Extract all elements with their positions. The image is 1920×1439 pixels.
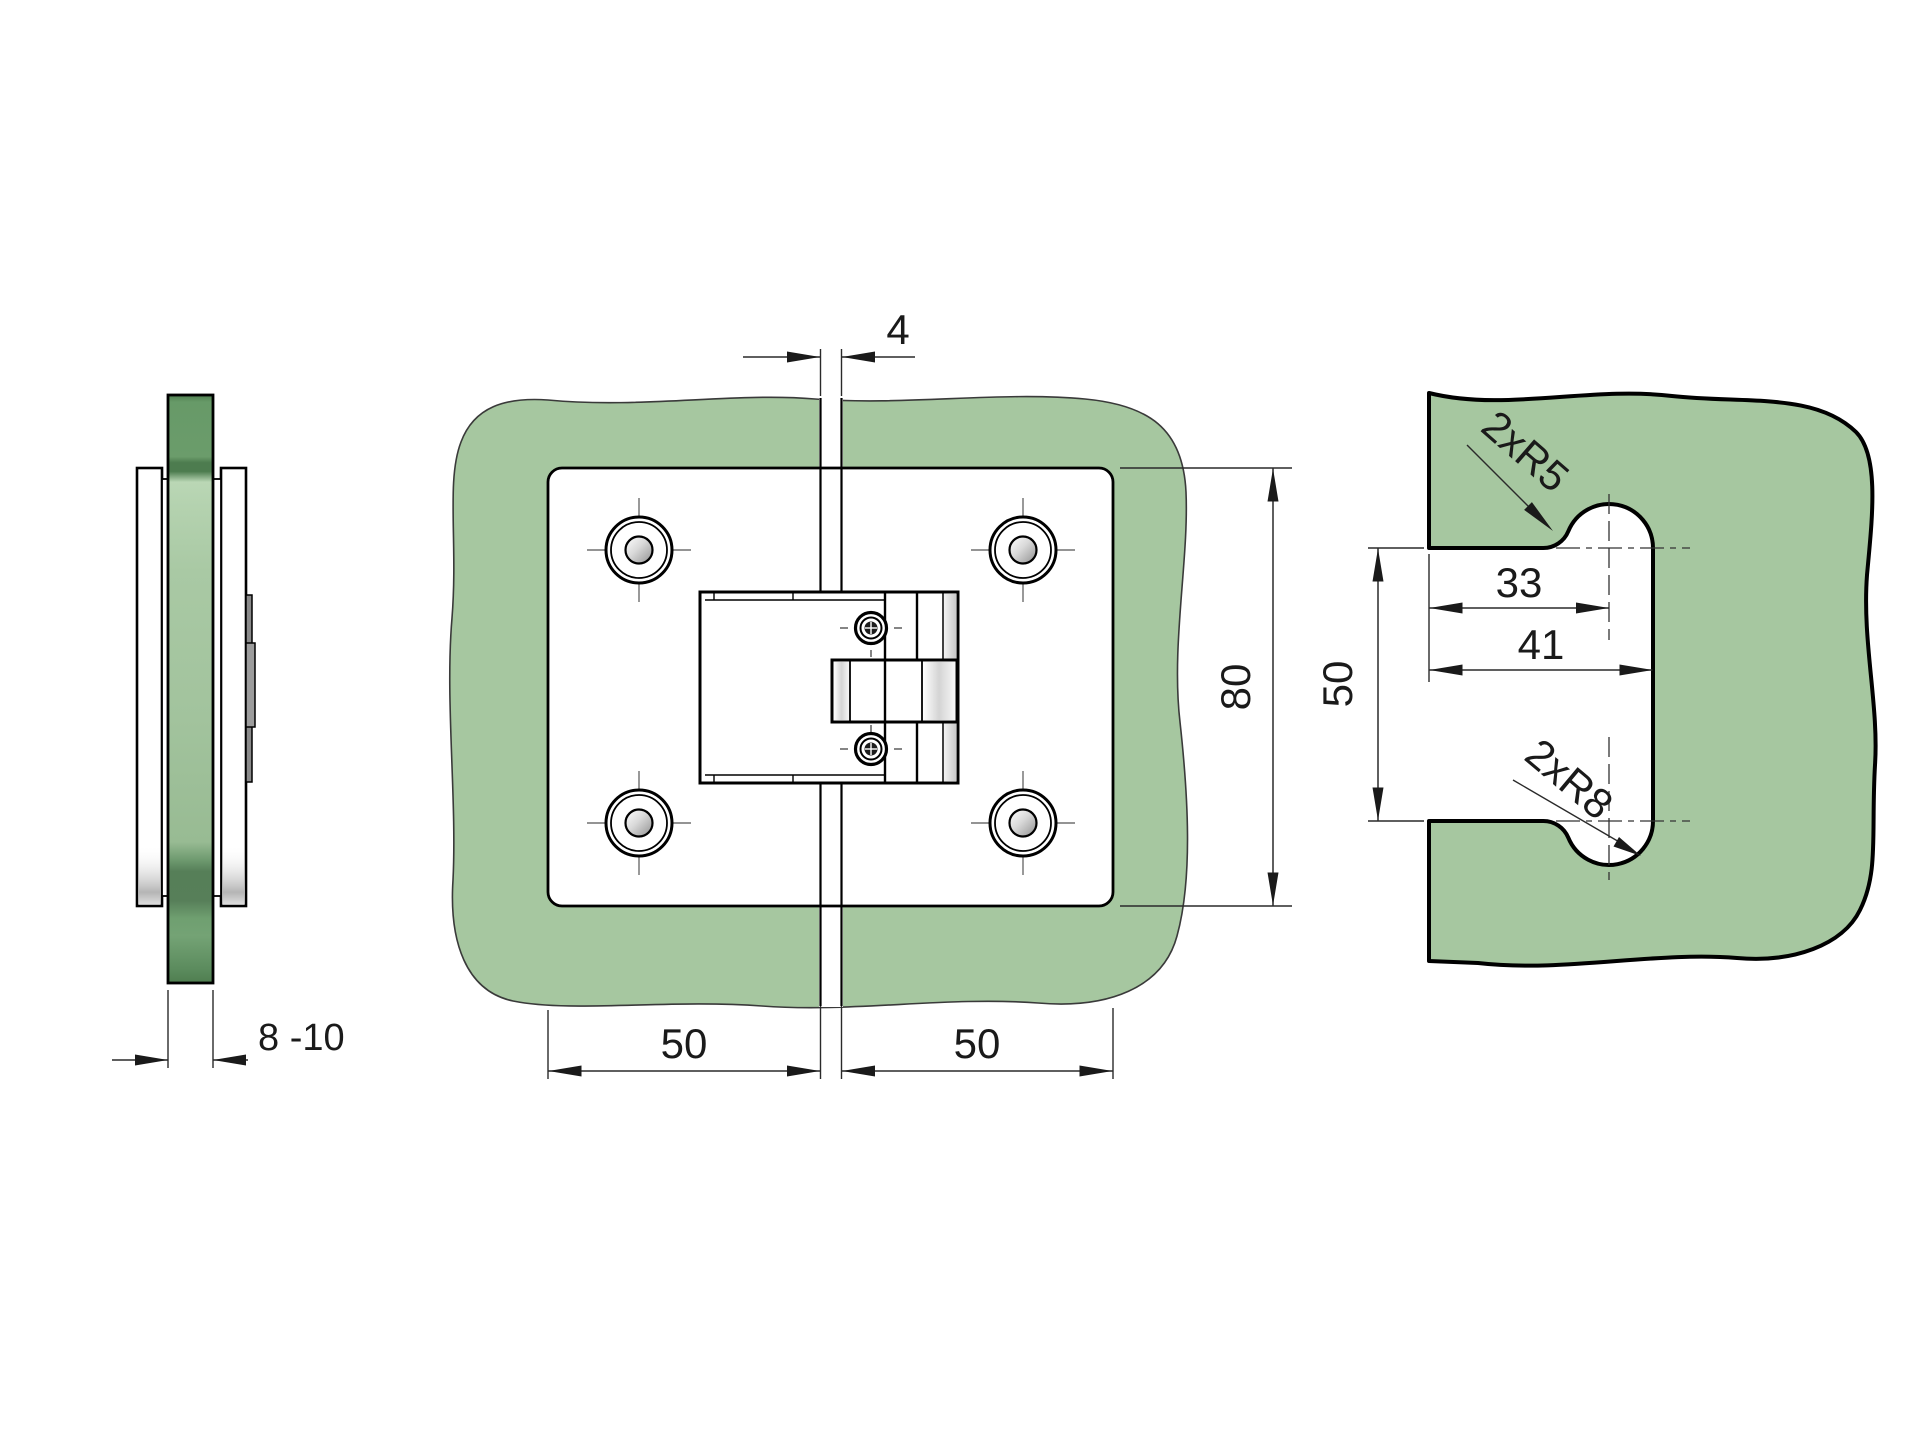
arrowhead	[549, 1066, 582, 1077]
arrowhead	[1576, 603, 1609, 614]
cutout-glass-panel	[1429, 393, 1876, 966]
side-hinge-knuckle-step	[246, 643, 255, 727]
dimension-label-center-offset: 33	[1496, 559, 1543, 606]
dimension-widths: 50 50	[548, 1006, 1113, 1079]
dimension-glass-thickness: 8 -10	[112, 990, 345, 1068]
arrowhead	[787, 352, 820, 363]
side-hinge-plate-left-shade	[139, 845, 160, 904]
dimension-notch-height: 50	[1314, 548, 1424, 821]
arrowhead	[1373, 549, 1384, 582]
dimension-label-gap: 4	[886, 306, 909, 353]
dimension-label-depth: 41	[1518, 621, 1565, 668]
hole-bore	[1010, 537, 1037, 564]
arrowhead	[135, 1055, 168, 1066]
hole-bore	[626, 537, 653, 564]
arrowhead	[1430, 665, 1463, 676]
side-view: 8 -10	[112, 395, 345, 1068]
dimension-label-height: 80	[1212, 664, 1259, 711]
arrowhead	[1373, 788, 1384, 821]
hole-bore	[626, 810, 653, 837]
side-glass-panel	[168, 395, 213, 983]
arrowhead	[1614, 837, 1642, 856]
knuckle-shade	[923, 662, 955, 720]
arrowhead	[787, 1066, 820, 1077]
knuckle-shade	[834, 662, 849, 720]
side-hinge-plate-right-shade	[223, 845, 244, 904]
dimension-label-right-width: 50	[954, 1020, 1001, 1067]
hinge-body	[700, 592, 958, 783]
socket-screw	[856, 613, 887, 644]
side-hinge-plate-right	[221, 468, 246, 906]
arrowhead	[1268, 873, 1279, 906]
technical-drawing-canvas: 8 -10	[0, 0, 1920, 1439]
dimension-label-left-width: 50	[661, 1020, 708, 1067]
hole-bore	[1010, 810, 1037, 837]
arrowhead	[213, 1055, 246, 1066]
arrowhead	[1430, 603, 1463, 614]
dimension-depth: 41	[1430, 621, 1653, 676]
arrowhead	[1620, 665, 1653, 676]
socket-screw	[856, 734, 887, 765]
side-hinge-plate-left	[137, 468, 162, 906]
dimension-label-notch-height: 50	[1314, 661, 1361, 708]
arrowhead	[1268, 469, 1279, 502]
front-view: 4 50 50 80	[450, 306, 1292, 1079]
arrowhead	[842, 352, 875, 363]
dimension-gap: 4	[743, 306, 915, 396]
arrowhead	[842, 1066, 875, 1077]
cutout-view: 50 33 41 2xR5 2xR8	[1314, 393, 1876, 966]
dimension-label-thickness: 8 -10	[258, 1017, 345, 1059]
arrowhead	[1080, 1066, 1113, 1077]
